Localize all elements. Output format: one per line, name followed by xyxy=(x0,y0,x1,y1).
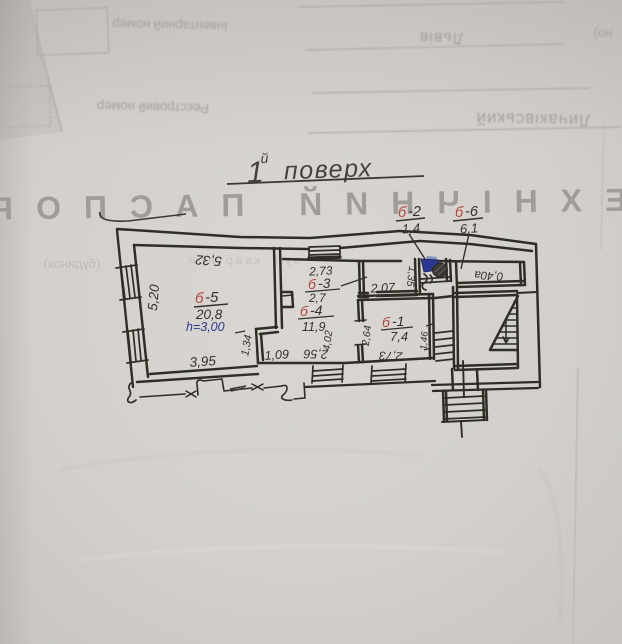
svg-text:1,46: 1,46 xyxy=(418,330,431,350)
svg-text:7,4: 7,4 xyxy=(390,329,408,344)
svg-text:11,9: 11,9 xyxy=(302,320,325,334)
svg-text:б: б xyxy=(455,205,464,221)
svg-text:Інвентарний номер: Інвентарний номер xyxy=(112,17,228,34)
svg-text:1,09: 1,09 xyxy=(264,347,289,363)
svg-text:б: б xyxy=(300,303,309,319)
svg-text:2,07: 2,07 xyxy=(369,280,396,295)
svg-text:но): но) xyxy=(593,27,612,42)
svg-text:1,4: 1,4 xyxy=(401,220,420,236)
svg-text:-5: -5 xyxy=(205,289,219,306)
svg-text:3,95: 3,95 xyxy=(189,353,217,370)
svg-text:1,35: 1,35 xyxy=(404,265,418,287)
svg-text:-6: -6 xyxy=(465,204,479,220)
svg-text:Львів: Львів xyxy=(419,29,464,47)
svg-text:5,20: 5,20 xyxy=(145,283,162,311)
svg-text:Личаківський: Личаківський xyxy=(475,109,590,130)
svg-text:Реєстровий номер: Реєстровий номер xyxy=(97,99,209,116)
svg-text:б: б xyxy=(308,276,317,292)
svg-text:-1: -1 xyxy=(392,313,404,329)
svg-text:-2: -2 xyxy=(408,204,421,220)
svg-text:(будинок): (будинок) xyxy=(44,256,101,271)
svg-text:h=3,00: h=3,00 xyxy=(186,320,225,334)
svg-text:б: б xyxy=(195,290,204,307)
svg-text:-3: -3 xyxy=(318,275,331,291)
svg-text:2,73: 2,73 xyxy=(379,349,404,364)
svg-text:0,40а: 0,40а xyxy=(474,268,503,281)
svg-text:б: б xyxy=(398,205,407,221)
svg-text:б: б xyxy=(382,314,391,330)
svg-text:й: й xyxy=(260,150,269,166)
svg-text:5,32: 5,32 xyxy=(195,252,223,269)
svg-text:-4: -4 xyxy=(310,302,323,318)
